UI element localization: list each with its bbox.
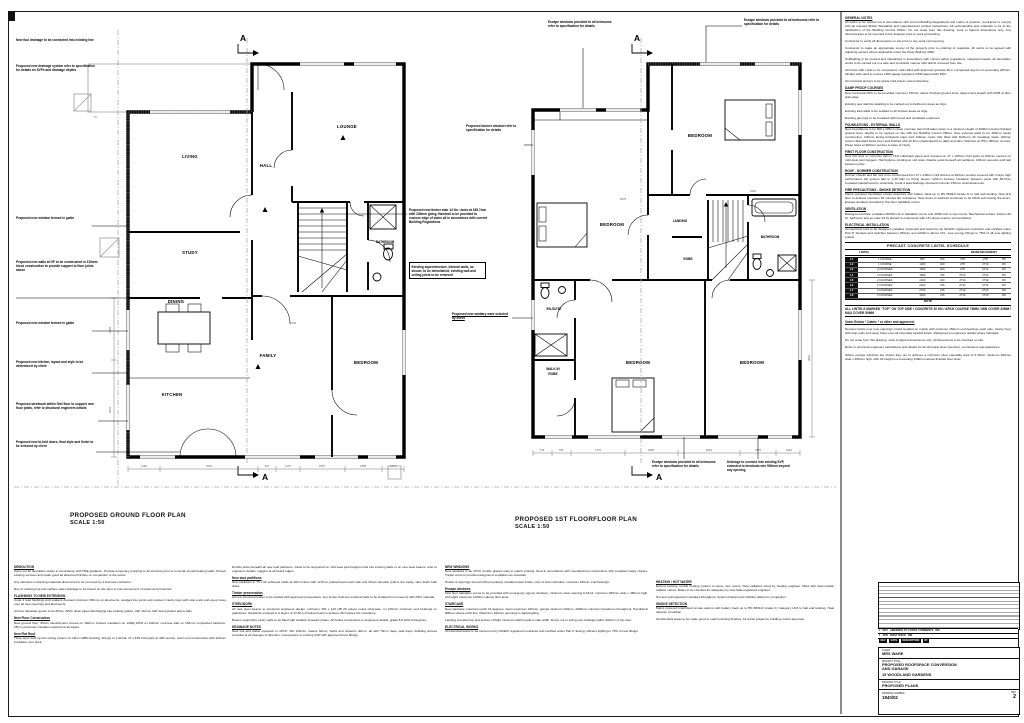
note-block: VENTILATION Background trickle ventilati… (845, 207, 1011, 219)
note-block: SMOKE DETECTION Mains powered interlinke… (656, 602, 834, 614)
svg-text:1170: 1170 (285, 464, 291, 468)
note-text: Landing provided top and bottom of fligh… (445, 618, 648, 622)
callout-note: Escape windows provided to all bedrooms … (744, 18, 822, 26)
note-block: Contractor to verify all dimensions on s… (845, 39, 1011, 43)
right-notes-column: GENERAL NOTES All works to be carried ou… (845, 16, 1011, 572)
svg-text:1190: 1190 (141, 464, 147, 468)
note-text: Extend existing central heating system t… (656, 584, 834, 592)
note-block: All disturbed areas to be made good to m… (656, 617, 834, 621)
level-arrow-family (256, 364, 261, 369)
rev-by: RW (935, 629, 939, 632)
note-block: GENERAL NOTES All works to be carried ou… (845, 16, 1011, 36)
note-text: All electrical works to be carried out b… (445, 629, 648, 633)
svg-text:2161: 2161 (786, 448, 792, 452)
note-heading: Outer Bricks * Catnic * or other and app… (845, 320, 1011, 324)
note-text: First floor habitable rooms to be provid… (445, 591, 648, 599)
revision-rule-lines (878, 582, 1020, 630)
note-text: Mains operated interlinked smoke detecto… (845, 192, 1011, 204)
room-label-bathroom-g: BATHROOM (376, 240, 395, 244)
svg-text:A: A (634, 33, 640, 43)
room-label-bedroom1: BEDROOM (600, 222, 624, 227)
note-text: Background trickle ventilation 8000mm2 t… (845, 212, 1011, 220)
client-name: MRS WARE (882, 652, 1016, 657)
room-label-robe: ROBE (683, 257, 692, 261)
note-block: HEATING / HOT WATER Extend existing cent… (656, 580, 834, 592)
note-text: All new structural timber to be treated … (232, 595, 437, 599)
note-text: All structural timbers to be grade C24 u… (845, 79, 1011, 83)
ground-plan-title: PROPOSED GROUND FLOOR PLAN SCALE 1:50 (70, 512, 240, 527)
room-label-landing: LANDING (673, 219, 688, 223)
level-arrow-hall (263, 207, 268, 212)
svg-text:1776: 1776 (595, 448, 601, 452)
note-text: All below slab voids to be compacted, vo… (845, 68, 1011, 76)
first-stair (708, 200, 748, 280)
lintel-group-right: REINFORCEMENT (971, 251, 997, 255)
callout-note-boxed: Existing superstructure, internal walls,… (409, 262, 486, 279)
ground-windows (128, 64, 404, 457)
note-block: Escape windows First floor habitable roo… (445, 587, 648, 599)
svg-text:1875: 1875 (319, 464, 325, 468)
rev-date: APR (882, 634, 887, 637)
note-block: FIRE PRECAUTIONS - SMOKE DETECTION Mains… (845, 188, 1011, 204)
svg-text:6703: 6703 (290, 321, 296, 325)
room-label-bedroom4: BEDROOM (740, 360, 764, 365)
note-block: ROOF - DORMER CONSTRUCTION Dormer cheeks… (845, 169, 1011, 185)
note-text: Refer to structural engineers calculatio… (845, 345, 1011, 349)
note-text: All new steel beams to structural engine… (232, 607, 437, 615)
lintel-group-left: LINTEL (859, 251, 870, 255)
callout-note: New foul drainage to be connected into e… (16, 38, 94, 42)
note-text: Existing new wall tile detailing to be c… (845, 102, 1011, 106)
note-text: Contractor to verify all dimensions on s… (845, 39, 1011, 43)
room-label-bedroom-g: BEDROOM (354, 360, 378, 365)
note-block: Where escape windows are shown they are … (845, 353, 1011, 361)
rev-desc: AMENDED TO CLIENT COMMENTS (890, 629, 933, 632)
svg-text:7016: 7016 (206, 464, 212, 468)
svg-text:719: 719 (540, 448, 545, 452)
note-block: DRAINAGE NOTES New soil and waste pipewo… (232, 625, 437, 637)
first-plan-title: PROPOSED 1ST FLOORFLOOR PLAN SCALE 1:50 (515, 516, 685, 531)
note-block: Refer to structural engineers calculatio… (845, 345, 1011, 349)
note-text: Where escape windows are shown they are … (845, 353, 1011, 361)
bottom-notes-col2: Double joists beneath all new stud parti… (232, 565, 437, 710)
note-block: Do not scale from this drawing, work to … (845, 338, 1011, 342)
ground-plan-scale: SCALE 1:50 (70, 520, 240, 527)
callout-note: Proposed new walls at GF to be construct… (16, 260, 98, 272)
callout-note: Proposed new window formed in gable (16, 216, 90, 220)
note-block: DAMP PROOF COURSES New horizontal DPC to… (845, 86, 1011, 98)
room-label-hall: HALL (260, 163, 273, 168)
note-block: New Flat Roof Three layer built up felt … (14, 632, 226, 644)
note-block: Contractor to make an appropriate survey… (845, 46, 1011, 54)
note-text: Denotes lintels over new openings; linte… (845, 327, 1011, 335)
note-text: Contractor to make an appropriate survey… (845, 46, 1011, 54)
note-block: DEMOLITION Carry out all demolition work… (14, 565, 226, 577)
note-text: New soil and waste pipework in uPVC: WC … (232, 629, 437, 637)
note-block: Landing provided top and bottom of fligh… (445, 618, 648, 622)
callout-note: Proposed new sanitary ware selected by c… (452, 312, 510, 320)
ground-dimensions: 1190 7016 917 1170 1875 1485 1774 1884 3… (108, 298, 404, 472)
first-plan-scale: SCALE 1:50 (515, 524, 685, 531)
note-text: Code 4 lead flashings and soakers dresse… (14, 598, 226, 606)
note-text: Double joists beneath all new stud parti… (232, 565, 437, 573)
callout-note: Escape windows provided to all bedrooms … (652, 460, 716, 468)
note-text: Existing tiled walls to be isolated to a… (845, 109, 1011, 113)
dining-table (158, 304, 210, 352)
callout-note: Escape windows provided to all bedrooms … (548, 20, 616, 28)
svg-text:1774: 1774 (390, 464, 396, 468)
note-text: All electrical work to be designed, inst… (845, 227, 1011, 239)
section-marker-ground-top: A (238, 33, 259, 56)
svg-text:A: A (240, 33, 246, 43)
section-marker-ground-bottom: A (238, 466, 268, 482)
ground-plan-title-text: PROPOSED GROUND FLOOR PLAN (70, 512, 240, 520)
svg-text:A: A (656, 472, 662, 482)
lintel-row: L83 COURSES 3000215 2T162T20 R8 (845, 293, 1011, 298)
ground-doors (180, 64, 390, 457)
note-block: All structural timbers to be grade C24 u… (845, 79, 1011, 83)
svg-text:917: 917 (265, 464, 270, 468)
title-block-client: CLIENT MRS WARE (879, 648, 1019, 659)
general-notes-blocks: GENERAL NOTES All works to be carried ou… (845, 16, 1011, 239)
note-block: Scaffolding to be erected and maintained… (845, 57, 1011, 65)
rev-value: 2 (1011, 694, 1016, 700)
note-block: Any asbestos containing materials discov… (14, 580, 226, 584)
note-text: New staircase: maximum pitch 42 degrees,… (445, 607, 648, 615)
room-label-dining: DINING (168, 299, 185, 304)
note-text: All works to be carried out in accordanc… (845, 20, 1011, 36)
note-block: Hot and cold pipework insulated througho… (656, 595, 834, 599)
bottom-notes-col1: DEMOLITION Carry out all demolition work… (14, 565, 226, 710)
callout-note: Proposed new bi-fold doors, final style … (16, 440, 94, 448)
note-block: Existing tiled walls to be isolated to a… (845, 109, 1011, 113)
drawing-sheet: B1 (0, 0, 1024, 723)
note-text: All disturbed areas to be made good to m… (656, 617, 834, 621)
site-boundary-lines: B1 (14, 30, 836, 487)
first-doors (557, 179, 765, 416)
revision-table: 2 MAY AMENDED TO CLIENT COMMENTS RW 1 AP… (878, 628, 1018, 643)
note-block: ELECTRICAL WORKS All electrical works to… (445, 625, 648, 633)
rev-no: 1 (879, 634, 880, 637)
note-block: Timber preservation All new structural t… (232, 591, 437, 599)
room-label-kitchen: KITCHEN (162, 392, 183, 397)
room-label-lounge: LOUNGE (337, 124, 357, 129)
callout-note: Proposed new kitchen, layout and style t… (16, 360, 94, 368)
note-text: Any asbestos containing materials discov… (14, 580, 226, 584)
note-block: Double joists beneath all new stud parti… (232, 565, 437, 573)
note-text: Beams supporting cavity walls to be fitt… (232, 618, 437, 622)
note-text: Mains powered interlinked smoke alarms w… (656, 606, 834, 614)
callout-note: Drainage to connect into existing SVP, e… (727, 460, 793, 472)
note-text: New ground floor: 65mm sand/cement scree… (14, 621, 226, 629)
note-block: Denotes lintels over new openings; linte… (845, 327, 1011, 335)
room-label-family: FAMILY (260, 353, 277, 358)
note-block: NEW WINDOWS New windows to be uPVC doubl… (445, 565, 648, 577)
note-text: New windows to be uPVC double glazed uni… (445, 569, 648, 577)
note-text: Heads of openings formed with proprietar… (445, 580, 648, 584)
svg-text:6275: 6275 (620, 197, 626, 201)
ground-stair (298, 208, 347, 292)
svg-text:3601: 3601 (807, 355, 811, 361)
room-label-ensuite: EN-SUITE (547, 307, 562, 311)
svg-text:3001: 3001 (108, 407, 112, 413)
svg-text:1884: 1884 (108, 327, 112, 333)
revision-header-row: REV DATE DESCRIPTION BY (878, 638, 1018, 644)
lintel-schedule: PRECAST CONCRETE LINTEL SCHEDULE LINTEL … (845, 242, 1011, 317)
room-label-walkin-1: WALK IN (546, 367, 560, 371)
lintel-footer: ALL LINTELS MARKED "TOP" ON TOP SIDE / C… (845, 305, 1011, 316)
ground-floor-plan: LIVING HALL LOUNGE STUDY BATHROOM DINING… (108, 33, 404, 482)
note-text: New foundations to be 600 x 225mm deep c… (845, 127, 1011, 147)
drawing-number: 1840/02 (882, 695, 905, 700)
section-marker-first-bottom: A (632, 466, 662, 482)
note-text: Dormer cheeks and flat roof to be constr… (845, 173, 1011, 185)
note-block: Beams supporting cavity walls to be fitt… (232, 618, 437, 622)
first-floor-plan: BEDROOM BEDROOM LANDING ROBE BATHROOM EN… (533, 33, 815, 482)
svg-text:A: A (262, 472, 268, 482)
note-block: FOUNDATIONS - EXTERNAL WALLS New foundat… (845, 123, 1011, 147)
note-text: Three layer built up felt roofing system… (14, 636, 226, 644)
level-arrow-lounge (341, 135, 346, 140)
callout-note: Proposed steelwork within first floor to… (16, 402, 98, 410)
svg-text:5661: 5661 (706, 448, 712, 452)
note-text: New partitions in 75 x 50 softwood studs… (232, 580, 437, 588)
room-label-bedroom2: BEDROOM (688, 133, 712, 138)
note-block: ELECTRICAL INSTALLATION All electrical w… (845, 223, 1011, 239)
note-block: All below slab voids to be compacted, vo… (845, 68, 1011, 76)
room-label-walkin-2: ROBE (548, 372, 557, 376)
note-text: New first floor to comprise 22mm T&G chi… (845, 154, 1011, 166)
room-label-living: LIVING (182, 154, 198, 159)
room-label-study: STUDY (182, 250, 198, 255)
bottom-notes-col4: HEATING / HOT WATER Extend existing cent… (656, 580, 834, 710)
note-text: Run of existing foul and surface water d… (14, 587, 226, 591)
note-text: Existing gas pipe to be insulated with b… (845, 116, 1011, 120)
note-block: FLASHINGS TO NEW EXTENSION Code 4 lead f… (14, 594, 226, 606)
rev-by: RW (908, 634, 912, 637)
room-label-bathroom-f: BATHROOM (761, 235, 780, 239)
note-block: New stud partitions New partitions in 75… (232, 576, 437, 588)
note-text: Do not scale from this drawing, work to … (845, 338, 1011, 342)
svg-text:5420: 5420 (750, 189, 756, 193)
note-text: Hot and cold pipework insulated througho… (656, 595, 834, 599)
post-table-notes: Outer Bricks * Catnic * or other and app… (845, 320, 1011, 360)
note-text: Scaffolding to be erected and maintained… (845, 57, 1011, 65)
title-block-number: DRAWING NUMBER 1840/02 REV 2 (879, 690, 1019, 701)
title-block-project: PROJECT TITLE PROPOSED ROOFSPACE CONVERS… (879, 659, 1019, 680)
bottom-notes-col3: NEW WINDOWS New windows to be uPVC doubl… (445, 565, 648, 710)
callout-note: Proposed new drainage system refer to sp… (16, 64, 96, 72)
svg-text:1485: 1485 (360, 464, 366, 468)
lintel-table: L11 COURSE 900100 2T82T8 R6 L21 COURSE 1… (845, 256, 1011, 299)
note-block: STAIRCASE New staircase: maximum pitch 4… (445, 602, 648, 614)
note-block: New Floor Construction New ground floor:… (14, 616, 226, 628)
note-block: Existing gas pipe to be insulated with b… (845, 116, 1011, 120)
drawing-title: PROPOSED PLANS (882, 684, 1016, 689)
first-plan-title-text: PROPOSED 1ST FLOORFLOOR PLAN (515, 516, 685, 524)
note-block: All new rainwater goods to be 68mm uPVC … (14, 609, 226, 613)
note-block: FIRST FLOOR CONSTRUCTION New first floor… (845, 150, 1011, 166)
callout-note: Proposed new timber stair 14 No. risers … (409, 208, 489, 224)
lintel-rows: L11 COURSE 900100 2T82T8 R6 L21 COURSE 1… (845, 257, 1011, 298)
note-block: Heads of openings formed with proprietar… (445, 580, 648, 584)
section-marker-first-top: A (632, 33, 653, 56)
project-address: 15 WOODLAND GARDENS (882, 673, 1016, 678)
rev-date: MAY (882, 629, 888, 632)
first-furniture (533, 100, 775, 432)
room-label-bedroom3: BEDROOM (626, 360, 650, 365)
title-block: CLIENT MRS WARE PROJECT TITLE PROPOSED R… (878, 647, 1020, 715)
note-block: Existing new wall tile detailing to be c… (845, 102, 1011, 106)
ground-interior-walls (128, 92, 404, 457)
grid-label: B1 (94, 115, 98, 119)
note-text: Carry out all demolition works in accord… (14, 569, 226, 577)
rev-no: 2 (879, 629, 880, 632)
note-text: New horizontal DPC to be provided minimu… (845, 91, 1011, 99)
callout-note: Proposed new window formed in gable (16, 321, 90, 325)
rev-desc: FIRST ISSUE (890, 634, 906, 637)
note-block: STEELWORK All new steel beams to structu… (232, 602, 437, 614)
title-block-drawing: DRAWING TITLE PROPOSED PLANS (879, 680, 1019, 691)
callout-note: Proposed dormer window refer to specific… (466, 124, 522, 132)
note-block: Run of existing foul and surface water d… (14, 587, 226, 591)
note-block: Outer Bricks * Catnic * or other and app… (845, 320, 1011, 324)
svg-text:700: 700 (559, 448, 564, 452)
svg-text:1868: 1868 (648, 448, 654, 452)
note-text: All new rainwater goods to be 68mm uPVC … (14, 609, 226, 613)
